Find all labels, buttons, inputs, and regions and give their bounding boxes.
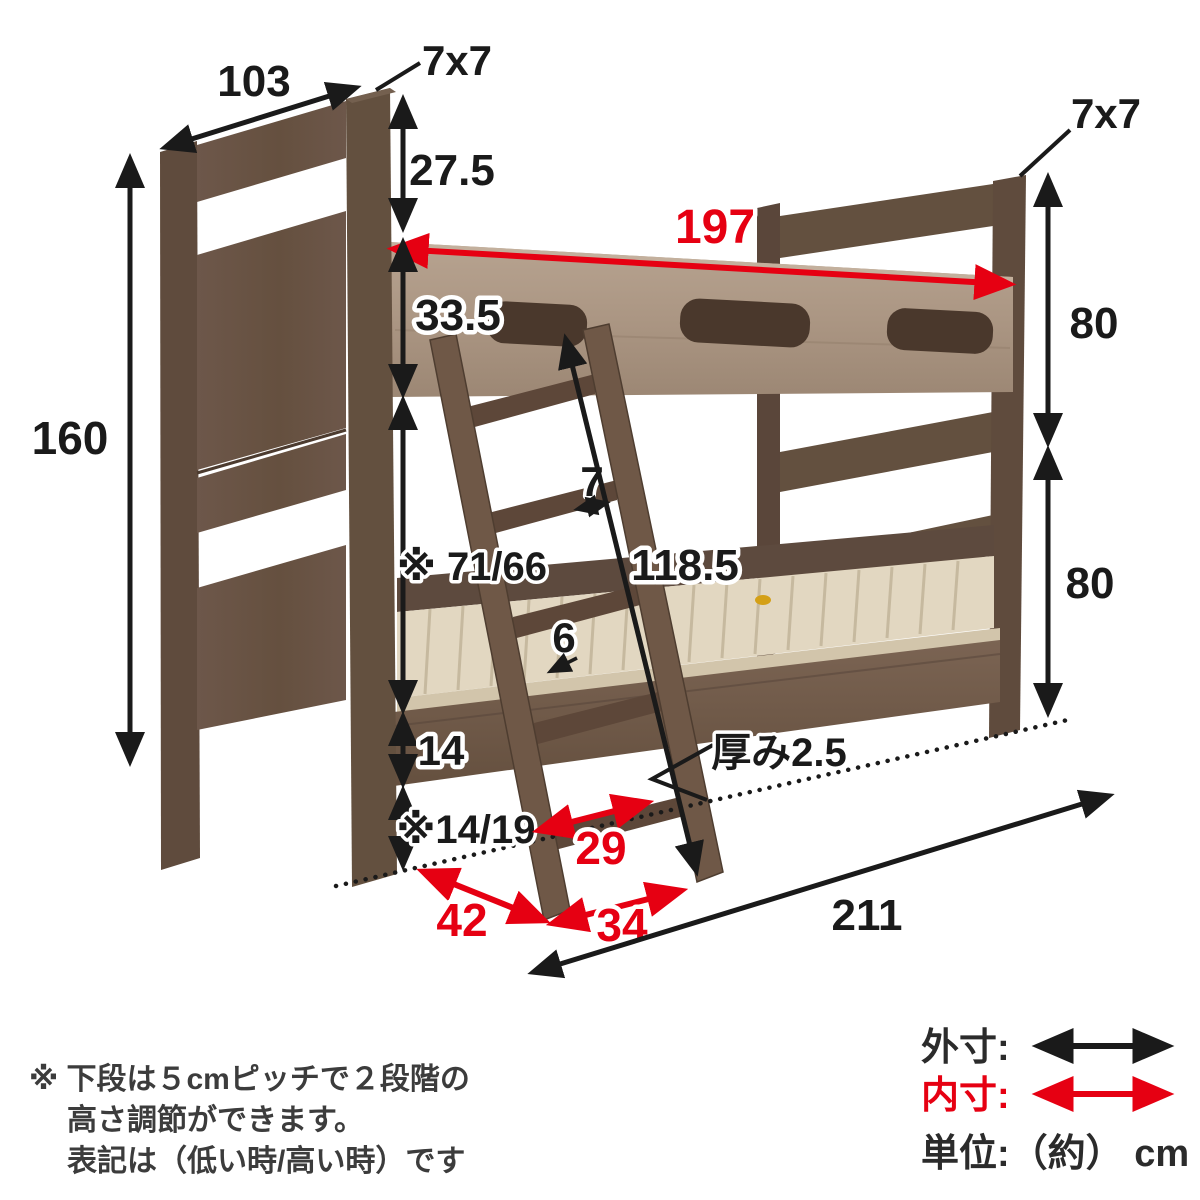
dim-label: 7x7 [1071, 90, 1141, 137]
dim-label: 27.5 [409, 146, 495, 195]
footnote-line-2: 高さ調節ができます。 [67, 1103, 364, 1137]
dim-label: 118.5 [631, 541, 739, 590]
dim-label: 7x7 [422, 37, 492, 84]
dim-total-height: 160 [32, 160, 130, 760]
dim-post-section-left: 7x7 [376, 37, 492, 90]
dim-lower-section-height: 80 [1048, 452, 1114, 711]
dim-label: 33.5 [415, 291, 501, 340]
dim-under-bed-clearance: ※14/19 [397, 792, 536, 864]
footnote-line-1: ※ 下段は５cmピッチで２段階の [29, 1062, 470, 1096]
dim-label: 厚み2.5 [711, 731, 847, 775]
legend-outer-row: 外寸: [921, 1027, 1166, 1069]
dim-top-clearance: 27.5 [403, 101, 495, 226]
legend-outer-label: 外寸: [921, 1027, 1010, 1069]
dim-ladder-foot-depth: 34 [554, 891, 680, 951]
dim-headboard-depth: 42 [424, 872, 543, 946]
dim-label: 211 [832, 891, 903, 940]
dim-label: 80 [1066, 559, 1115, 608]
legend-inner-row: 内寸: [921, 1075, 1166, 1117]
dim-label: 160 [32, 412, 109, 464]
footnote-line-3: 表記は（低い時/高い時）です [67, 1144, 465, 1178]
dim-label: 6 [552, 614, 575, 661]
dim-label: ※ 71/66 [397, 545, 547, 589]
dim-label: 197 [675, 201, 755, 254]
bunk-bed-dimension-page: 103 7x7 27.5 197 7x7 33.5 160 80 80 ※ 71… [0, 0, 1200, 1200]
legend-unit-label: 単位:（約） cm [921, 1133, 1189, 1175]
footnote: ※ 下段は５cmピッチで２段階の 高さ調節ができます。 表記は（低い時/高い時）… [29, 1062, 470, 1178]
dim-label: 42 [436, 894, 487, 946]
small-toy [755, 595, 771, 605]
dim-upper-section-height: 80 [1048, 179, 1118, 441]
dim-label: 14 [418, 727, 465, 774]
dim-label: ※14/19 [397, 808, 536, 852]
left-headboard [160, 88, 397, 887]
dim-label: 80 [1070, 299, 1119, 348]
legend: 外寸: 内寸: 単位:（約） cm [921, 1027, 1189, 1175]
dim-label: 103 [217, 57, 290, 106]
dim-label: 29 [575, 822, 626, 874]
dim-post-section-right: 7x7 [1020, 90, 1141, 176]
legend-inner-label: 内寸: [921, 1075, 1010, 1117]
bunk-bed-dimension-diagram: 103 7x7 27.5 197 7x7 33.5 160 80 80 ※ 71… [0, 0, 1200, 1200]
